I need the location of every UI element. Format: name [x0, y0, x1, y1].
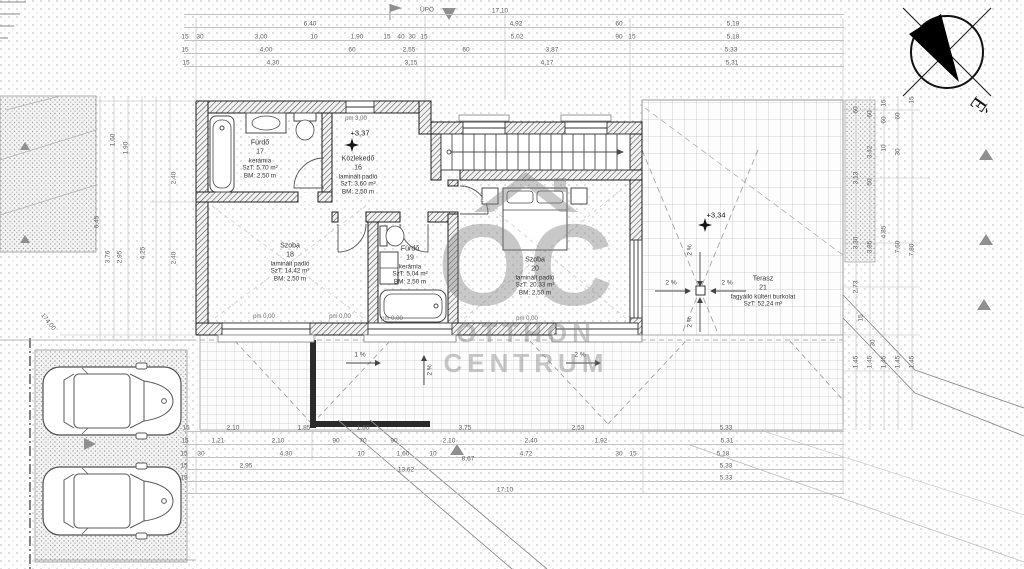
lower-wall — [310, 421, 430, 427]
bench-mark-triangle — [979, 149, 993, 160]
drain-icon — [696, 286, 705, 295]
site-areas — [0, 2, 196, 569]
ramp-area — [0, 96, 96, 252]
bench-mark-triangle — [977, 299, 991, 310]
corner-hatch — [0, 2, 26, 38]
car-icon — [43, 363, 181, 439]
bench-mark-triangle — [979, 234, 993, 245]
flag-icon — [390, 4, 402, 12]
compass-rose — [903, 8, 991, 96]
lower-terrace — [200, 335, 843, 430]
nightstand-icon — [482, 188, 498, 204]
planting-strip — [845, 100, 875, 262]
plan-drawing — [0, 0, 1024, 569]
triangle-down-marker — [442, 8, 456, 20]
car-icon — [43, 463, 181, 539]
lower-wall — [310, 340, 316, 428]
floor-plan-sheet: OC OTTHON CENTRUM É 17,106,404,92605,191… — [0, 0, 1024, 569]
level-star-icon — [345, 138, 359, 152]
bench-mark-triangle — [450, 444, 464, 455]
staircase — [441, 134, 630, 170]
nightstand-icon — [571, 188, 587, 204]
